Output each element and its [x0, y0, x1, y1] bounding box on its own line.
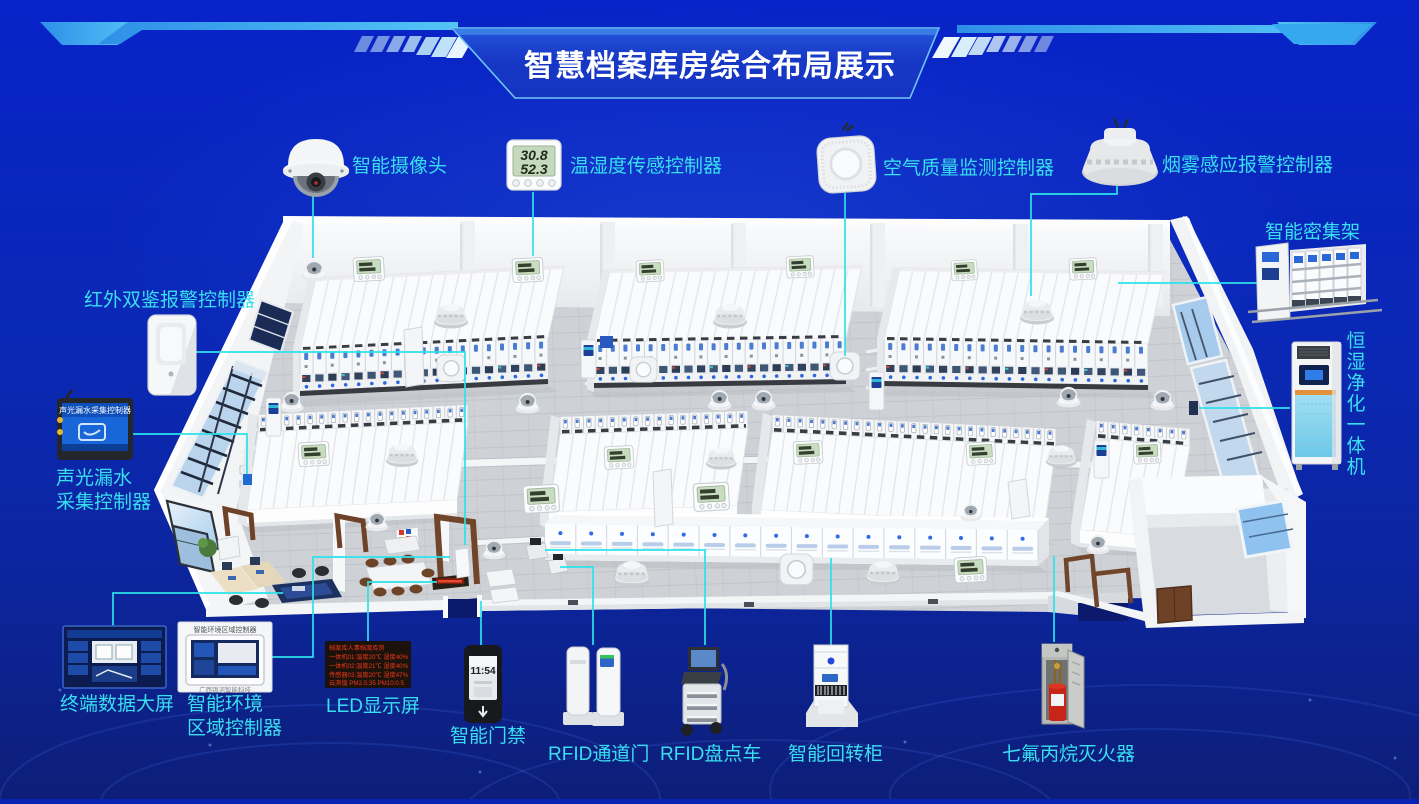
- svg-text:烟雾感应报警控制器: 烟雾感应报警控制器: [1162, 154, 1333, 176]
- svg-text:空气质量监测控制器: 空气质量监测控制器: [883, 157, 1054, 179]
- svg-text:净: 净: [1346, 372, 1365, 394]
- svg-text:化: 化: [1346, 393, 1365, 415]
- svg-text:智慧档案库房综合布局展示: 智慧档案库房综合布局展示: [524, 49, 896, 83]
- svg-text:终端数据大屏: 终端数据大屏: [60, 693, 174, 715]
- svg-text:LED显示屏: LED显示屏: [326, 696, 420, 717]
- svg-text:声光漏水: 声光漏水: [56, 467, 132, 489]
- svg-text:传感器03:温度20℃ 湿度47%: 传感器03:温度20℃ 湿度47%: [329, 671, 409, 679]
- svg-text:云测值 PM2.5:35 PM10:0.5: 云测值 PM2.5:35 PM10:0.5: [329, 679, 405, 687]
- svg-text:一体机02:温度21℃ 湿度40%: 一体机02:温度21℃ 湿度40%: [329, 662, 409, 670]
- svg-text:智能摄像头: 智能摄像头: [352, 155, 447, 177]
- svg-text:声光漏水采集控制器: 声光漏水采集控制器: [59, 405, 131, 415]
- svg-text:RFID通道门: RFID通道门: [548, 743, 649, 765]
- svg-text:一体机01:温度20℃ 湿度40%: 一体机01:温度20℃ 湿度40%: [329, 653, 409, 661]
- svg-text:温湿度传感控制器: 温湿度传感控制器: [570, 155, 722, 177]
- svg-text:恒: 恒: [1346, 330, 1365, 352]
- svg-text:智能密集架: 智能密集架: [1265, 221, 1360, 243]
- svg-text:七氟丙烷灭火器: 七氟丙烷灭火器: [1002, 743, 1135, 765]
- svg-text:RFID盘点车: RFID盘点车: [660, 743, 761, 765]
- svg-text:广西银河智能科技: 广西银河智能科技: [199, 685, 252, 694]
- svg-text:体: 体: [1346, 435, 1365, 457]
- svg-text:智能门禁: 智能门禁: [450, 725, 526, 747]
- svg-text:智能回转柜: 智能回转柜: [788, 743, 883, 765]
- svg-text:红外双鉴报警控制器: 红外双鉴报警控制器: [84, 289, 255, 311]
- svg-text:采集控制器: 采集控制器: [56, 491, 151, 513]
- svg-text:52.3: 52.3: [520, 161, 547, 177]
- svg-text:区域控制器: 区域控制器: [187, 717, 282, 739]
- svg-text:11:54: 11:54: [470, 666, 495, 677]
- svg-text:湿: 湿: [1346, 351, 1365, 373]
- svg-text:智能环境: 智能环境: [187, 693, 263, 715]
- svg-text:智能环境区域控制器: 智能环境区域控制器: [194, 625, 257, 634]
- svg-text:机: 机: [1346, 456, 1365, 478]
- svg-text:一: 一: [1346, 415, 1365, 436]
- svg-text:档案库人事档案库房: 档案库人事档案库房: [329, 644, 385, 652]
